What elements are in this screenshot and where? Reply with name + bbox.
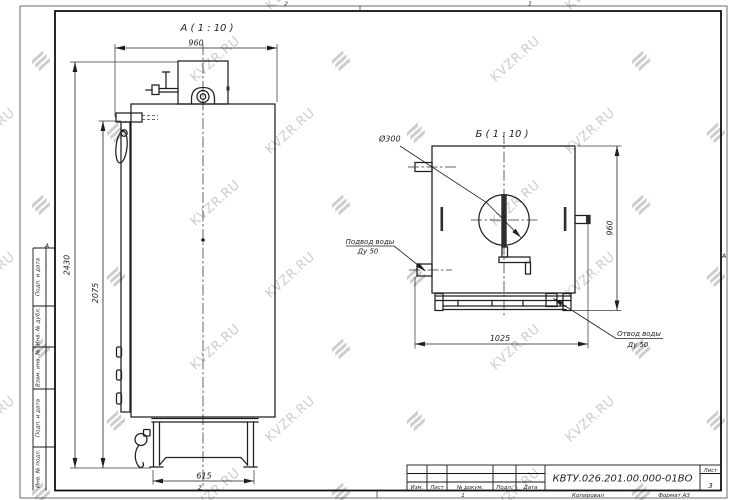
footer-copied: Копировал	[572, 493, 604, 499]
margin-label-vzam-inv: Взам. инв. №	[36, 349, 42, 387]
svg-text:Ду 50: Ду 50	[627, 341, 649, 349]
footer-zone: 1	[461, 493, 465, 499]
view-b-caption: Б ( 1 : 10 )	[475, 129, 528, 140]
svg-text:2075: 2075	[91, 283, 100, 303]
zone-number-top-right: 1	[528, 0, 532, 8]
col-podp: Подп.	[496, 485, 512, 491]
water-inlet-label: Подвод воды Ду 50	[346, 238, 426, 271]
col-data: Дата	[523, 485, 538, 491]
footer-format: Формат А3	[658, 493, 690, 499]
svg-text:2430: 2430	[63, 255, 72, 275]
flue-diameter-label: Ø300	[378, 134, 521, 238]
center-mark	[201, 238, 205, 242]
svg-text:Ø300: Ø300	[378, 134, 401, 144]
dimension-2075: 2075	[91, 121, 121, 468]
dimension-615: 615	[153, 470, 254, 485]
col-list: Лист	[429, 485, 445, 491]
document-designation: КВТУ.026.201.00.000-01ВО	[553, 474, 693, 485]
col-izm: Изм.	[411, 485, 424, 491]
dimension-2430: 2430	[63, 62, 179, 468]
drawing-sheet: 2 1 2 А А Подп. и дата Инв. № дубл. Взам…	[0, 0, 750, 500]
view-b-rear: Б ( 1 : 10 )	[346, 129, 663, 349]
zone-letter-right: А	[721, 252, 726, 260]
view-a-side: А ( 1 : 10 )	[63, 23, 278, 486]
title-block: Изм. Лист № докум. Подп. Дата КВТУ.026.2…	[407, 465, 721, 499]
margin-label-inv-podl: Инв. № подл.	[36, 449, 42, 488]
zone-number-top-left: 2	[284, 0, 288, 8]
col-ndokum: № докум.	[456, 485, 484, 491]
margin-label-inv-dubl: Инв. № дубл.	[36, 307, 42, 345]
margin-label-podp-data-2: Подп. и дата	[36, 398, 42, 437]
svg-text:960: 960	[606, 220, 615, 235]
left-margin-table: Подп. и дата Инв. № дубл. Взам. инв. № П…	[33, 248, 55, 491]
svg-text:Ду 50: Ду 50	[357, 248, 379, 256]
sheet-number: 3	[708, 482, 712, 490]
svg-text:960: 960	[188, 39, 203, 48]
door-edge	[121, 122, 130, 412]
margin-label-podp-data-1: Подп. и дата	[36, 257, 42, 296]
svg-text:Отвод воды: Отвод воды	[617, 330, 661, 338]
dimension-960-top: 960	[115, 39, 277, 118]
zone-letter-left: А	[44, 242, 49, 250]
svg-text:Подвод воды: Подвод воды	[346, 238, 395, 246]
water-outlet-label: Отвод воды Ду 50	[554, 299, 664, 350]
sheet-label: Лист	[703, 468, 719, 474]
svg-text:615: 615	[196, 472, 211, 481]
ash-door-knob	[135, 434, 147, 446]
svg-text:1025: 1025	[490, 334, 510, 343]
zone-number-bottom-left: 2	[198, 484, 202, 492]
dimension-960-right: 960	[572, 146, 622, 311]
view-a-caption: А ( 1 : 10 )	[180, 23, 234, 34]
drawing-svg: 2 1 2 А А Подп. и дата Инв. № дубл. Взам…	[0, 0, 750, 500]
ash-door-lever	[135, 445, 143, 467]
